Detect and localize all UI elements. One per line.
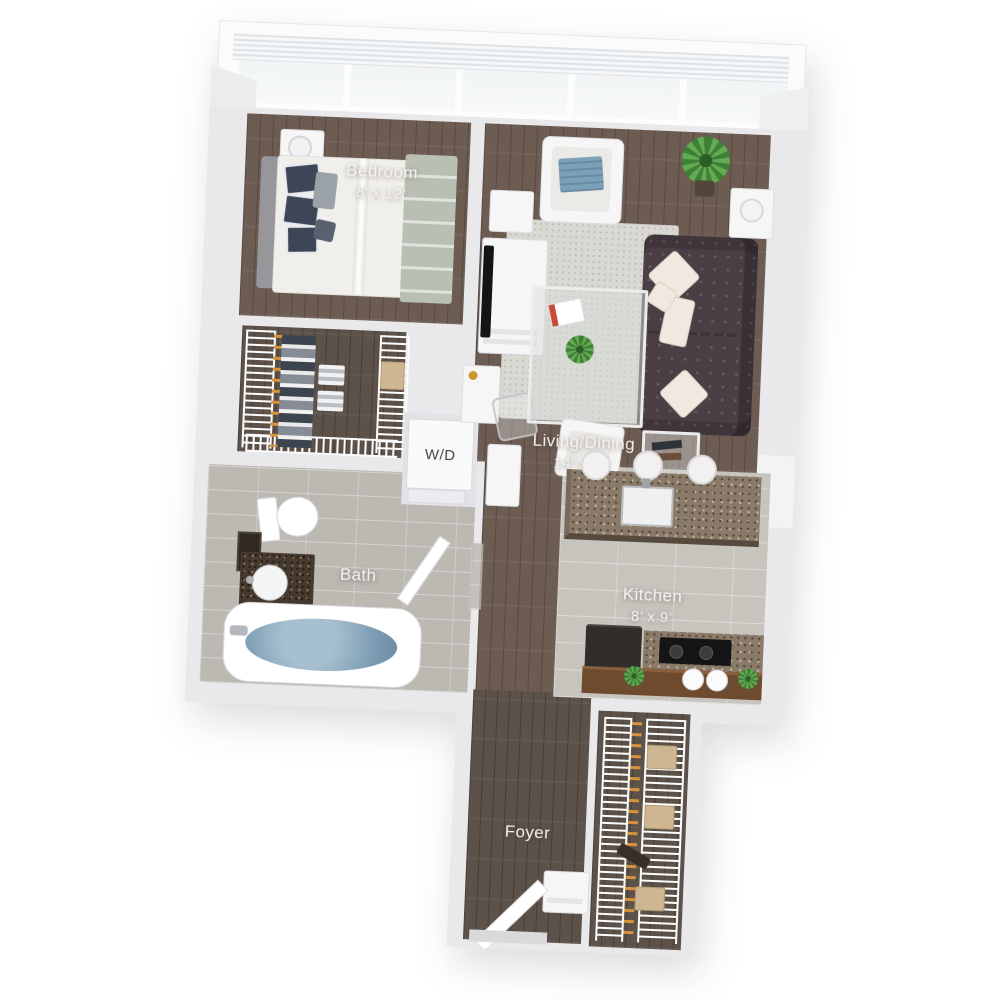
storage-box	[380, 361, 405, 390]
kitchen-name: Kitchen	[622, 584, 682, 605]
toilet-bowl	[275, 495, 321, 539]
laundry-label: W/D	[407, 419, 474, 490]
storage-box	[634, 886, 665, 911]
foyer-label: Foyer	[504, 821, 550, 846]
bedroom-name: Bedroom	[346, 161, 419, 183]
pantry-cabinet	[485, 444, 522, 507]
bedroom-label: Bedroom 8’ x 12’	[345, 160, 419, 206]
washer-dryer: W/D	[406, 418, 475, 491]
bed-pillow-accent	[313, 219, 337, 243]
hanging-clothes	[277, 335, 316, 448]
burner	[699, 646, 714, 661]
media-table	[489, 190, 535, 234]
folded-clothes	[317, 391, 344, 412]
bed-pillow-gray	[312, 172, 338, 210]
sink-faucet	[642, 478, 650, 488]
kitchen-label: Kitchen 8’ x 9’	[621, 583, 682, 629]
bedroom-dims: 8’ x 12’	[345, 182, 418, 205]
living-name: Living/Dining	[532, 431, 635, 454]
cooktop	[659, 637, 732, 666]
foyer-name: Foyer	[504, 822, 550, 843]
kitchen-sink	[620, 485, 674, 527]
entry-bench	[542, 870, 590, 914]
washer-dryer-ledge	[407, 488, 466, 504]
kitchen-dims: 8’ x 9’	[621, 606, 681, 629]
floor-plan-image: Bedroom 8’ x 12’ W/D Bath	[0, 0, 1000, 1000]
burner	[669, 644, 684, 659]
folded-clothes	[318, 365, 345, 386]
armchair-pillow	[558, 156, 604, 193]
bench-shelf	[547, 898, 583, 905]
laundry-text: W/D	[425, 446, 456, 464]
bath-name: Bath	[339, 565, 376, 586]
apartment-floor-plan: Bedroom 8’ x 12’ W/D Bath	[175, 20, 813, 964]
plant-pot	[694, 180, 715, 197]
bath-label: Bath	[339, 564, 377, 588]
bathtub-faucet	[230, 625, 248, 636]
storage-box	[644, 805, 675, 830]
toilet	[256, 489, 323, 547]
storage-box	[646, 745, 677, 770]
